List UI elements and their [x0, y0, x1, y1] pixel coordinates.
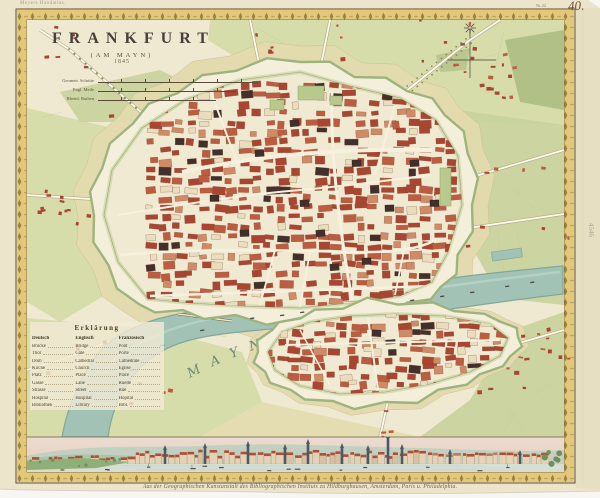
- legend-cell: Bibliothek: [32, 403, 75, 408]
- tree-dot: [411, 81, 413, 83]
- building-block: [355, 204, 369, 209]
- building-block: [172, 127, 184, 133]
- legend-cell: Hospital: [75, 396, 118, 401]
- tree-dot: [450, 50, 452, 52]
- building-block: [370, 235, 381, 241]
- building-block: [211, 176, 222, 180]
- plate-number: 40.: [567, 0, 584, 14]
- legend-leader-dots: [43, 354, 73, 355]
- map-subtitle: (AM MAYN): [52, 52, 192, 59]
- hamlet-building: [454, 64, 459, 67]
- panorama-roof: [271, 451, 275, 454]
- hamlet-building: [336, 24, 338, 26]
- building-block: [185, 271, 192, 276]
- hamlet-building: [58, 211, 62, 215]
- landmark-building: [352, 160, 361, 167]
- building-block: [446, 149, 455, 154]
- scale-bar-label: Rheinl. Ruthen: [42, 96, 98, 101]
- building-block: [370, 185, 379, 194]
- building-block: [223, 167, 235, 174]
- bank-tree: [29, 460, 31, 462]
- building-block: [370, 261, 378, 266]
- tree-dot: [129, 102, 131, 104]
- legend-term: Église: [119, 366, 131, 371]
- building-block: [456, 358, 464, 366]
- border-band-right: [564, 10, 574, 482]
- panorama-roof: [532, 453, 537, 456]
- panorama-roof: [372, 456, 377, 459]
- building-block: [343, 234, 354, 241]
- hamlet-building: [477, 390, 482, 394]
- building-block: [211, 139, 220, 144]
- building-block: [202, 224, 215, 231]
- building-block: [163, 261, 175, 270]
- building-block: [188, 110, 200, 116]
- panorama-building: [428, 455, 432, 464]
- panorama-roof: [523, 454, 530, 457]
- building-block: [163, 232, 171, 241]
- building-block: [421, 372, 431, 381]
- hamlet-building: [484, 172, 489, 174]
- panorama-tree: [542, 454, 548, 460]
- panorama-boat: [219, 467, 224, 468]
- building-block: [279, 83, 287, 90]
- building-block: [329, 82, 339, 88]
- panorama-tree: [546, 450, 550, 454]
- hamlet-building: [422, 60, 425, 63]
- building-block: [278, 130, 288, 136]
- bank-tree: [105, 460, 107, 462]
- building-block: [266, 93, 280, 99]
- legend-cell: Französisch: [119, 336, 162, 341]
- building-block: [279, 178, 290, 186]
- legend-row: ThorGatePorte: [32, 349, 162, 356]
- map-sheet: MAYN FLUSSSACHSENHAUSEN Meyers Handatlas…: [0, 0, 600, 498]
- panorama-building: [235, 458, 240, 464]
- tree-dot: [421, 82, 423, 84]
- building-block: [172, 222, 179, 228]
- legend-term: Lane: [75, 381, 85, 386]
- building-block: [367, 280, 374, 287]
- building-block: [409, 273, 417, 279]
- building-block: [445, 348, 454, 355]
- legend-leader-dots: [45, 384, 73, 385]
- building-block: [305, 137, 316, 143]
- building-block: [342, 111, 352, 117]
- legend-row: KircheChurchÉglise: [32, 364, 162, 371]
- building-block: [278, 339, 286, 346]
- bank-tree: [118, 458, 121, 461]
- building-block: [278, 216, 285, 223]
- building-block: [356, 112, 366, 117]
- bank-tree: [84, 463, 87, 466]
- panorama-roof: [145, 451, 149, 454]
- building-block: [468, 355, 476, 363]
- map-title-block: FRANKFURT (AM MAYN) 1845: [52, 30, 202, 65]
- building-block: [371, 111, 378, 116]
- sheet-edge-shade: [576, 8, 600, 490]
- building-block: [399, 315, 408, 320]
- legend-cell: Dom: [32, 359, 75, 364]
- building-block: [159, 130, 170, 136]
- panorama-roof: [408, 451, 414, 454]
- legend-leader-dots: [135, 399, 160, 400]
- building-block: [186, 242, 193, 246]
- tree-dot: [456, 54, 458, 56]
- building-block: [252, 186, 260, 193]
- hamlet-building: [76, 222, 79, 226]
- building-block: [265, 137, 277, 146]
- building-block: [266, 252, 277, 257]
- building-block: [407, 110, 416, 118]
- building-block: [349, 380, 357, 385]
- building-block: [339, 365, 347, 370]
- legend-row: GasseLaneRuelle: [32, 378, 162, 385]
- panorama-building: [378, 454, 384, 464]
- legend-term: Street: [75, 388, 86, 393]
- legend-cell: Church: [75, 366, 118, 371]
- panorama-building: [320, 455, 326, 464]
- building-block: [369, 100, 379, 106]
- hamlet-building: [541, 167, 546, 170]
- series-note: Meyers Handatlas.: [20, 1, 66, 6]
- building-block: [236, 121, 245, 129]
- legend-leader-dots: [48, 391, 74, 392]
- building-block: [198, 234, 207, 242]
- panorama-roof: [493, 453, 497, 456]
- building-block: [239, 148, 252, 154]
- building-block: [228, 121, 236, 126]
- building-block: [249, 254, 261, 261]
- hamlet-building: [54, 26, 58, 29]
- building-block: [145, 242, 157, 249]
- building-block: [199, 175, 210, 182]
- building-block: [276, 271, 288, 278]
- map-title: FRANKFURT: [52, 30, 202, 48]
- building-block: [266, 169, 273, 175]
- building-block: [250, 131, 256, 136]
- building-block: [431, 157, 441, 164]
- building-block: [331, 291, 343, 296]
- tree-dot: [412, 89, 414, 91]
- legend-cell: Thor: [32, 351, 75, 356]
- building-block: [394, 242, 401, 248]
- panorama-roof: [106, 458, 110, 461]
- building-block: [175, 119, 182, 124]
- panorama-roof: [155, 453, 161, 456]
- panorama-roof: [258, 452, 264, 455]
- building-block: [288, 358, 301, 362]
- building-block: [422, 233, 430, 240]
- building-block: [409, 119, 420, 126]
- panorama-tree: [555, 457, 560, 462]
- building-block: [176, 253, 187, 259]
- panorama-tree: [548, 461, 554, 467]
- building-block: [358, 235, 364, 243]
- building-block: [470, 338, 478, 345]
- building-block: [314, 348, 326, 356]
- building-block: [146, 215, 158, 220]
- building-block: [288, 197, 297, 205]
- building-block: [344, 99, 356, 107]
- legend-term: Pont: [119, 344, 128, 349]
- building-block: [329, 280, 342, 285]
- building-block: [419, 120, 431, 129]
- building-block: [316, 111, 325, 116]
- building-block: [395, 207, 403, 213]
- building-block: [184, 215, 195, 224]
- building-block: [159, 224, 167, 231]
- panorama-building: [479, 455, 486, 464]
- panorama-roof: [419, 451, 426, 454]
- panorama-building: [453, 455, 461, 464]
- building-block: [432, 252, 439, 258]
- building-block: [215, 216, 223, 221]
- building-block: [225, 206, 238, 214]
- hamlet-building: [567, 358, 570, 360]
- panorama-roof: [463, 453, 466, 456]
- legend-cell: Pont: [119, 344, 162, 349]
- hamlet-building: [469, 22, 472, 26]
- building-block: [330, 244, 341, 250]
- building-block: [146, 186, 156, 194]
- panorama-roof: [486, 453, 492, 456]
- building-block: [418, 166, 429, 174]
- panorama-building: [433, 455, 438, 464]
- hamlet-building: [494, 167, 499, 171]
- legend-cell: Lane: [75, 381, 118, 386]
- panorama-building: [475, 455, 479, 464]
- landmark-building: [430, 200, 439, 207]
- building-block: [172, 150, 179, 155]
- hamlet-building: [502, 63, 504, 66]
- legend-leader-dots: [89, 391, 117, 392]
- tree-dot: [441, 66, 443, 68]
- hamlet-building: [508, 75, 512, 78]
- panorama-roof: [198, 450, 202, 453]
- building-block: [319, 242, 330, 250]
- building-block: [159, 197, 173, 204]
- legend-row: BrückeBridgePont: [32, 341, 162, 348]
- building-block: [215, 272, 229, 278]
- building-block: [457, 346, 465, 355]
- building-block: [238, 241, 247, 247]
- building-block: [186, 138, 194, 146]
- building-block: [326, 322, 334, 327]
- building-block: [173, 187, 180, 193]
- building-block: [290, 205, 298, 210]
- hamlet-building: [488, 75, 493, 79]
- hamlet-building: [45, 189, 48, 193]
- panorama-roof: [175, 455, 179, 458]
- building-block: [412, 329, 420, 335]
- landmark-building: [410, 160, 419, 167]
- building-block: [302, 217, 313, 223]
- tree-dot: [416, 86, 418, 88]
- building-block: [227, 223, 238, 231]
- building-block: [357, 167, 371, 176]
- panorama-roof: [428, 452, 432, 455]
- building-block: [436, 138, 445, 144]
- building-block: [319, 252, 331, 258]
- building-block: [239, 140, 253, 148]
- panorama-roof: [327, 454, 330, 457]
- panorama-building: [180, 455, 187, 464]
- legend-term: Place: [119, 373, 129, 378]
- publisher-caption: Aus der Geographischen Kunstanstalt des …: [0, 484, 600, 490]
- building-block: [237, 283, 250, 290]
- building-block: [291, 129, 299, 137]
- building-block: [148, 272, 161, 279]
- building-block: [171, 242, 180, 249]
- panorama-layer: [27, 433, 564, 472]
- building-block: [351, 331, 361, 337]
- legend-leader-dots: [133, 384, 160, 385]
- building-block: [266, 283, 273, 288]
- panorama-boat: [60, 469, 64, 470]
- building-block: [385, 358, 393, 364]
- building-block: [214, 225, 226, 233]
- panorama-tower: [449, 454, 452, 464]
- legend-term: Rue: [119, 388, 127, 393]
- panorama-roof: [330, 453, 335, 456]
- building-block: [278, 147, 292, 152]
- legend-cell: Rue: [119, 388, 162, 393]
- building-block: [289, 214, 300, 218]
- hamlet-building: [60, 196, 64, 199]
- hamlet-building: [541, 227, 545, 230]
- building-block: [312, 382, 323, 390]
- panorama-building: [506, 455, 513, 464]
- hamlet-building: [489, 88, 494, 91]
- legend-term: Church: [75, 366, 89, 371]
- building-block: [267, 206, 274, 214]
- building-block: [146, 264, 156, 272]
- building-block: [399, 329, 412, 337]
- legend-title: Erklärung: [32, 324, 162, 332]
- panorama-tower: [387, 438, 390, 464]
- building-block: [344, 167, 353, 174]
- building-block: [435, 233, 446, 238]
- park-green: [298, 86, 324, 100]
- legend-row: StrasseStreetRue: [32, 386, 162, 393]
- building-block: [199, 111, 213, 120]
- panorama-roof: [150, 455, 155, 458]
- building-block: [318, 205, 332, 212]
- building-block: [250, 166, 261, 172]
- panorama-roof: [136, 452, 139, 455]
- building-block: [367, 160, 378, 166]
- tree-dot: [446, 54, 448, 56]
- panorama-roof: [264, 453, 271, 456]
- panorama-building: [249, 455, 256, 464]
- building-block: [397, 382, 404, 387]
- hamlet-building: [567, 236, 570, 240]
- legend-panel: Erklärung DeutschEnglischFranzösischBrüc…: [30, 322, 164, 410]
- scale-bar: Geometr. Schritte: [42, 74, 267, 83]
- legend-term: Englisch: [75, 336, 93, 341]
- park-green: [440, 168, 451, 206]
- building-block: [382, 271, 390, 278]
- hamlet-building: [40, 207, 44, 210]
- building-block: [324, 337, 335, 342]
- building-block: [407, 233, 416, 239]
- hamlet-building: [268, 49, 272, 53]
- building-block: [349, 356, 358, 364]
- building-block: [331, 255, 340, 261]
- building-block: [292, 102, 299, 110]
- building-block: [228, 233, 237, 238]
- legend-leader-dots: [87, 384, 117, 385]
- hamlet-building: [548, 349, 552, 353]
- scale-bar-rule: [98, 79, 258, 83]
- legend-term: Cathédrale: [119, 359, 140, 364]
- panorama-building: [327, 456, 330, 464]
- legend-leader-dots: [128, 391, 160, 392]
- panorama-tower: [367, 450, 370, 464]
- building-block: [292, 271, 299, 278]
- building-block: [341, 198, 353, 203]
- tree-dot: [436, 62, 438, 64]
- legend-term: Library: [75, 403, 89, 408]
- panorama-roof: [506, 453, 513, 456]
- building-block: [356, 129, 369, 138]
- legend-term: Strasse: [32, 388, 46, 393]
- building-block: [188, 262, 197, 270]
- building-block: [212, 149, 222, 155]
- panorama-roof: [235, 456, 240, 459]
- panorama-building: [335, 454, 340, 464]
- legend-cell: Strasse: [32, 388, 75, 393]
- panorama-building: [408, 453, 414, 464]
- panorama-building: [493, 455, 497, 464]
- tree-dot: [441, 58, 443, 60]
- legend-term: Thor: [32, 351, 41, 356]
- legend-cell: Hospital: [32, 396, 75, 401]
- scale-bar-rule: [98, 97, 216, 101]
- panorama-roof: [140, 453, 145, 456]
- building-block: [293, 253, 304, 260]
- building-block: [265, 234, 274, 239]
- building-block: [147, 138, 154, 144]
- panorama-tower: [307, 444, 310, 464]
- building-block: [176, 281, 184, 286]
- building-block: [354, 290, 361, 296]
- building-block: [306, 299, 315, 305]
- building-block: [199, 121, 209, 126]
- building-block: [435, 147, 444, 152]
- legend-row: DomCathedralCathédrale: [32, 356, 162, 363]
- building-block: [469, 323, 480, 329]
- border-band-top: [17, 10, 574, 20]
- building-block: [172, 178, 182, 185]
- building-block: [163, 253, 176, 260]
- panorama-building: [169, 457, 175, 464]
- panorama-roof: [514, 454, 517, 457]
- tree-dot: [421, 73, 423, 75]
- building-block: [317, 213, 323, 218]
- panorama-roof: [453, 453, 461, 456]
- landmark-building: [240, 230, 249, 237]
- building-block: [328, 137, 340, 143]
- building-block: [279, 138, 287, 144]
- panorama-roof: [249, 453, 256, 456]
- building-block: [420, 216, 431, 221]
- panorama-building: [187, 454, 194, 464]
- legend-cell: Library: [75, 403, 118, 408]
- bank-tree: [51, 458, 54, 461]
- building-block: [226, 187, 237, 194]
